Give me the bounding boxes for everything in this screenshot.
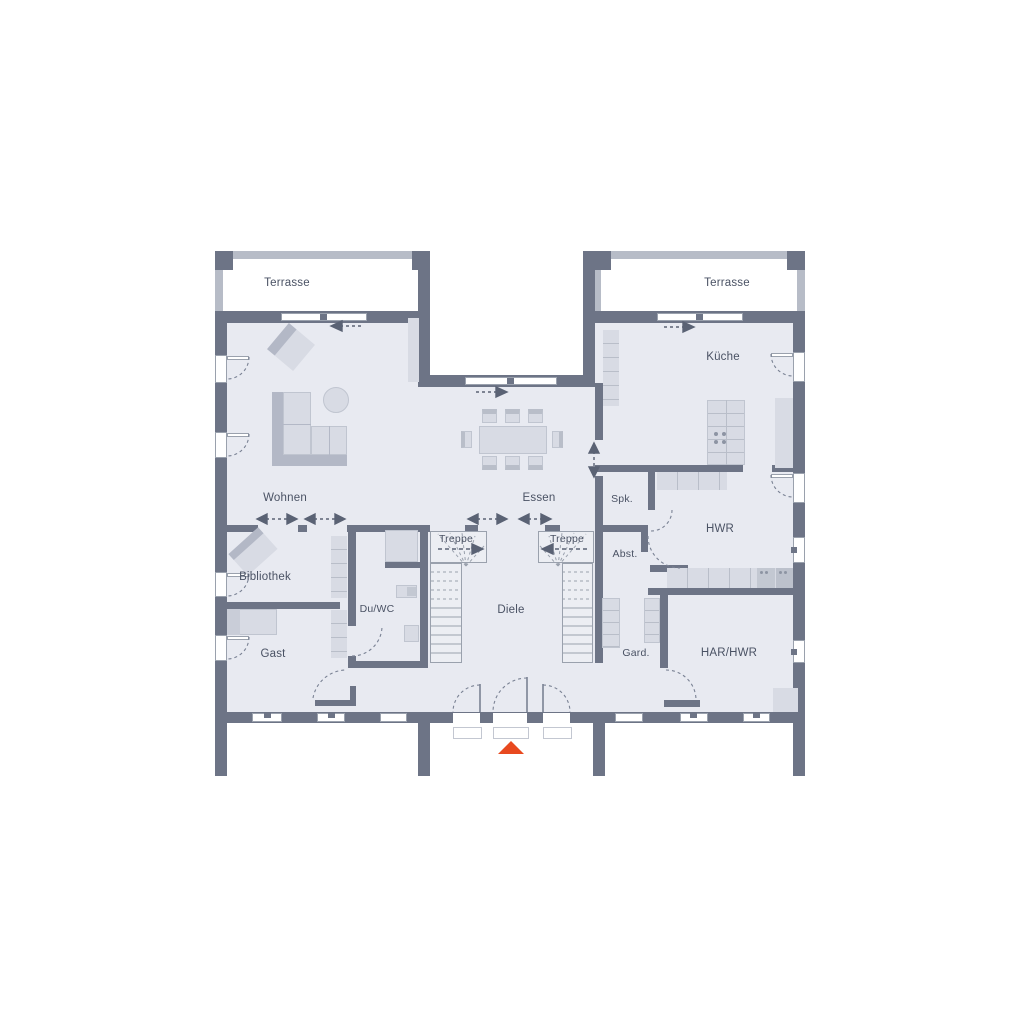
room-label-kueche: Küche (706, 351, 740, 363)
room-label-treppe-right: Treppe (550, 533, 584, 545)
sliding-door-arrows (331, 321, 694, 397)
room-label-bibliothek: Bibliothek (239, 571, 291, 583)
room-label-terrasse-left: Terrasse (264, 277, 310, 289)
room-label-essen: Essen (523, 492, 556, 504)
room-label-gard: Gard. (622, 647, 649, 659)
room-label-abst: Abst. (613, 548, 638, 560)
room-label-spk: Spk. (611, 493, 633, 505)
annotation-layer (0, 0, 1024, 1024)
door-leaves (480, 677, 543, 712)
room-label-hwr: HWR (706, 523, 734, 535)
room-label-wohnen: Wohnen (263, 492, 307, 504)
room-label-treppe-left: Treppe (439, 533, 473, 545)
passage-arrows (257, 443, 599, 524)
room-label-du-wc: Du/WC (360, 603, 395, 615)
entrance-marker (498, 741, 524, 754)
room-label-diele: Diele (497, 604, 524, 616)
room-label-gast: Gast (260, 648, 285, 660)
room-label-terrasse-right: Terrasse (704, 277, 750, 289)
floor-plan: Terrasse Terrasse Wohnen Essen Küche Bib… (0, 0, 1024, 1024)
room-label-har-hwr: HAR/HWR (701, 647, 757, 659)
